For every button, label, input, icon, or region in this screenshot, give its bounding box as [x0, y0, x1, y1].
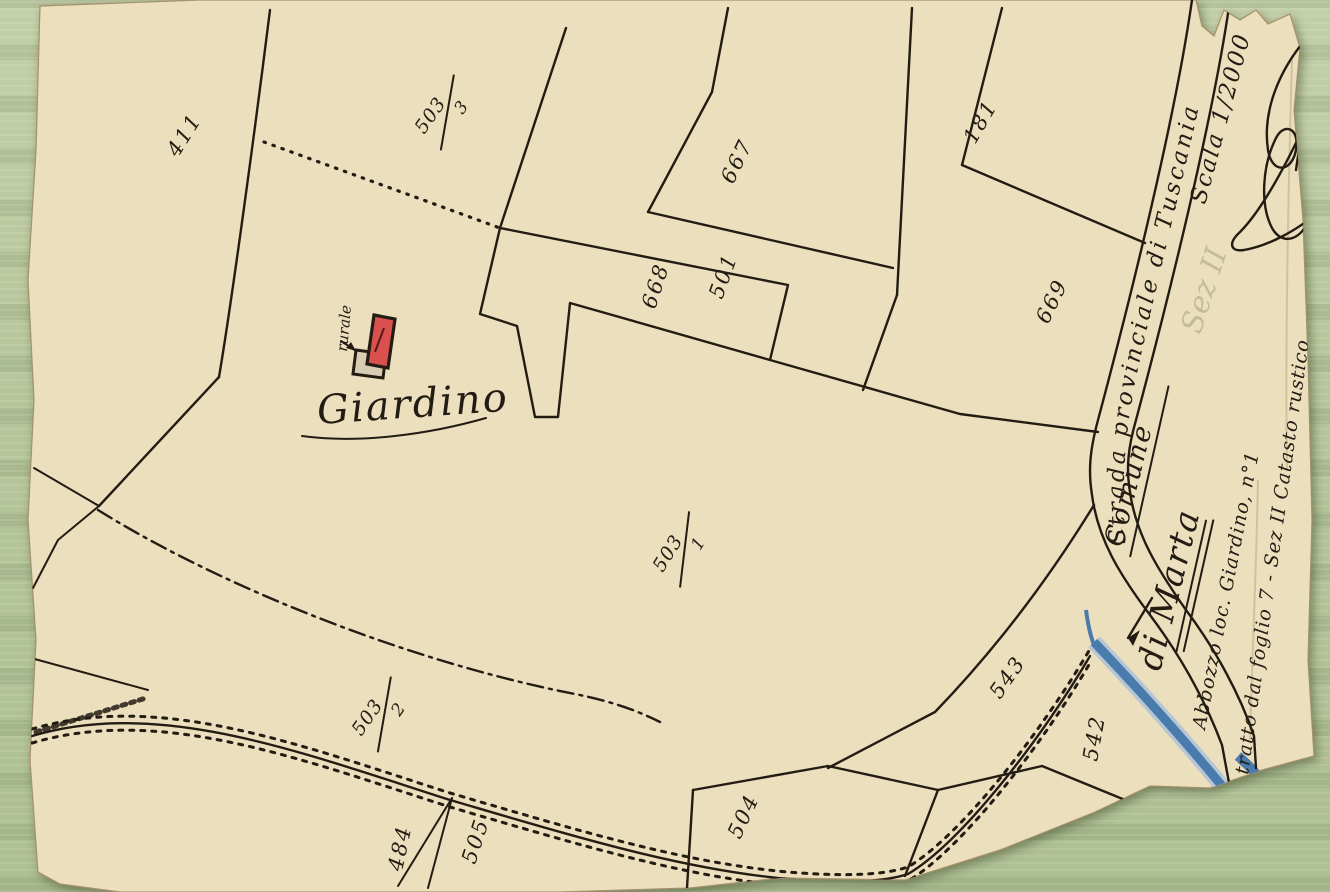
cadastral-map-scan: 411 503 3 667 501 668 181 669 503 1 503 … [0, 0, 1330, 892]
scanner-background: 411 503 3 667 501 668 181 669 503 1 503 … [0, 0, 1330, 892]
